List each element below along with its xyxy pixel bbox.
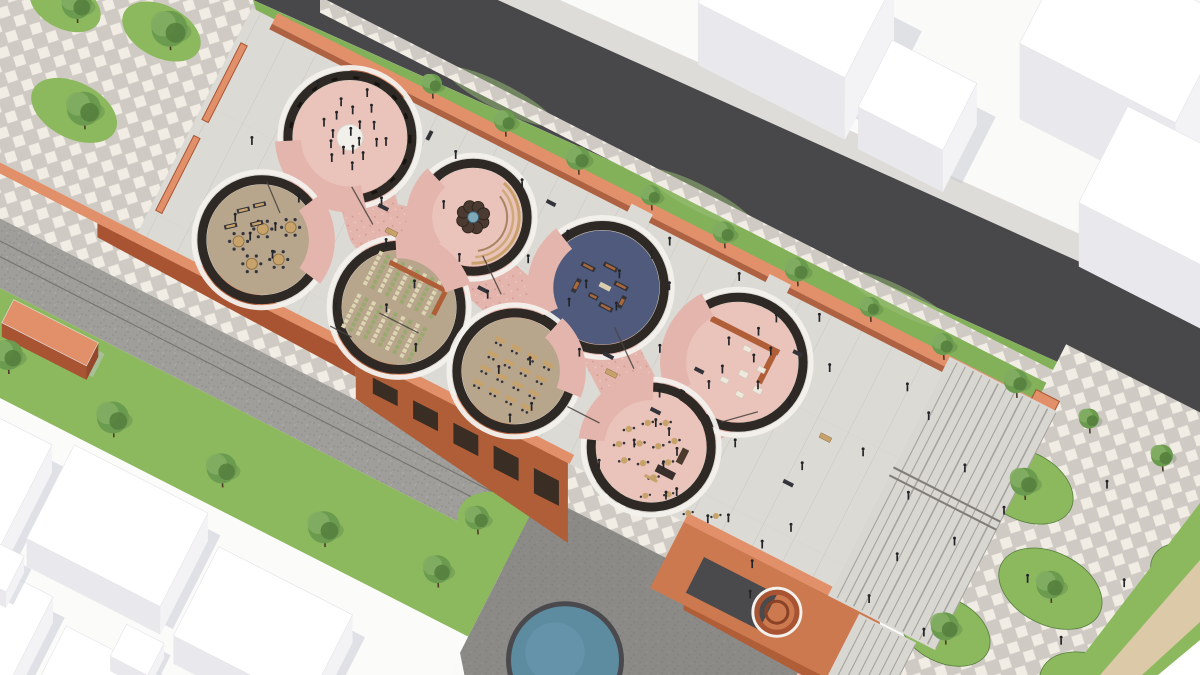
room-reading-room	[449, 305, 586, 437]
architectural-rendering	[0, 0, 1200, 675]
room-cafe	[579, 374, 720, 515]
scene-canvas	[0, 0, 1200, 675]
room-dining-hall	[194, 172, 335, 308]
